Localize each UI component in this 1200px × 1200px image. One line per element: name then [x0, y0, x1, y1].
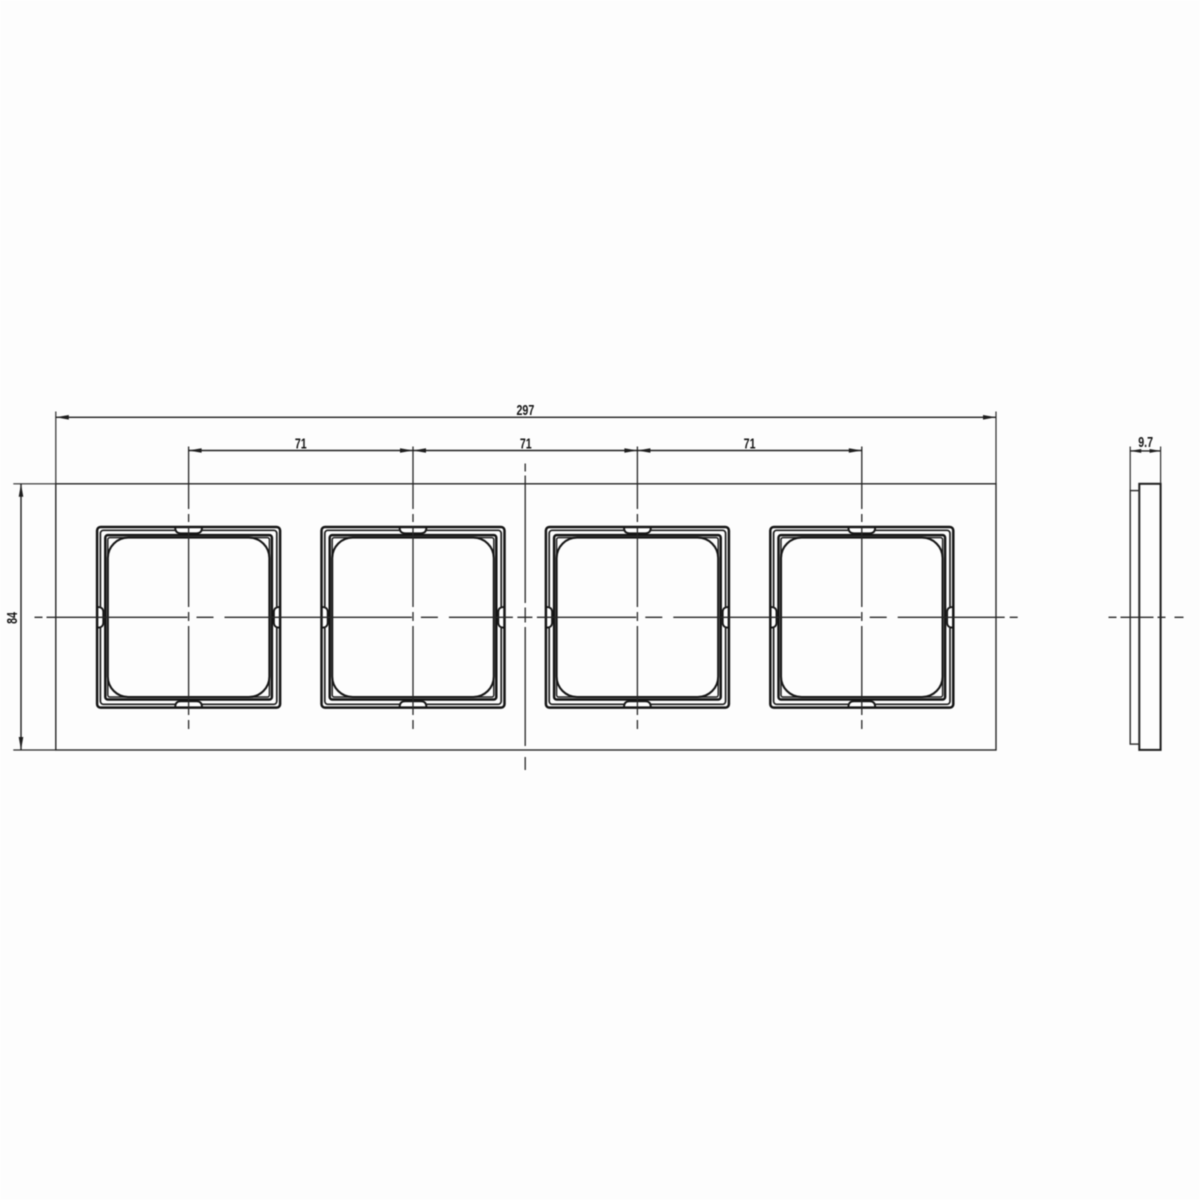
svg-text:84: 84 [3, 611, 20, 624]
svg-text:9.7: 9.7 [1138, 433, 1153, 450]
svg-text:71: 71 [295, 435, 307, 452]
svg-text:297: 297 [517, 401, 535, 418]
svg-text:71: 71 [744, 435, 756, 452]
svg-text:71: 71 [520, 435, 532, 452]
